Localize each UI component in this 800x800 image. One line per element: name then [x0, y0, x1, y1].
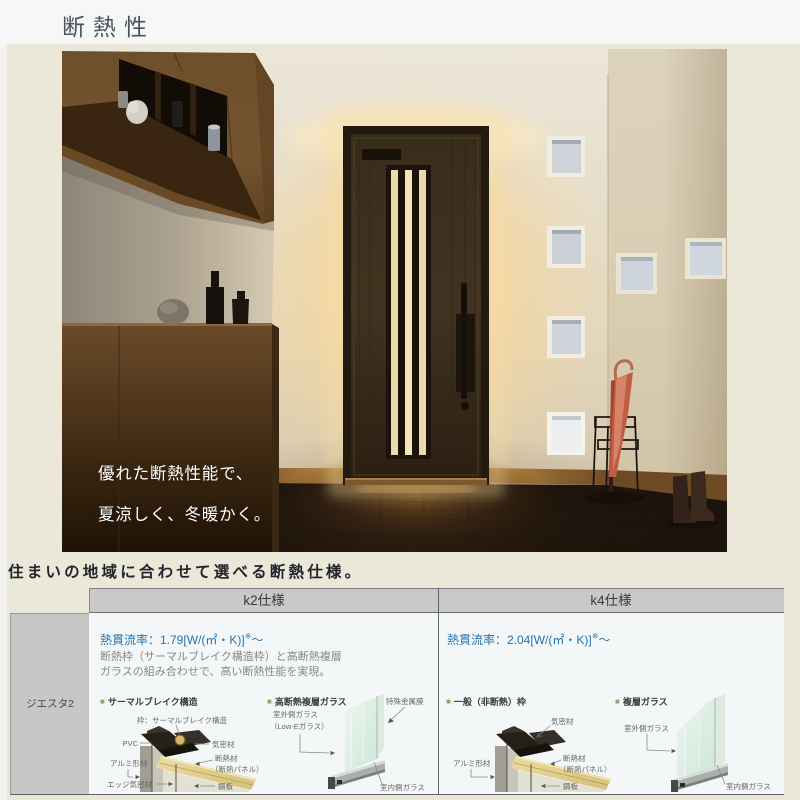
svg-text:室外側ガラス: 室外側ガラス [624, 723, 669, 733]
svg-text:（Low-Eガラス）: （Low-Eガラス） [270, 721, 329, 731]
svg-text:室内側ガラス: 室内側ガラス [726, 781, 771, 791]
svg-text:特殊金属膜: 特殊金属膜 [386, 696, 424, 706]
svg-text:（断熱パネル）: （断熱パネル） [559, 764, 612, 774]
svg-text:アルミ形材: アルミ形材 [453, 758, 491, 768]
svg-text:鋼板: 鋼板 [218, 781, 233, 791]
svg-text:アルミ形材: アルミ形材 [110, 758, 148, 768]
svg-text:（断熱パネル）: （断熱パネル） [211, 764, 264, 774]
svg-text:鋼板: 鋼板 [563, 781, 578, 791]
svg-text:PVC: PVC [123, 739, 139, 748]
svg-text:エッジ気密材: エッジ気密材 [107, 779, 152, 789]
svg-text:室内側ガラス: 室内側ガラス [380, 782, 425, 792]
svg-text:枠：サーマルブレイク構造: 枠：サーマルブレイク構造 [137, 715, 227, 725]
svg-text:気密材: 気密材 [212, 739, 235, 749]
svg-text:断熱材: 断熱材 [563, 753, 586, 763]
svg-text:室外側ガラス: 室外側ガラス [273, 709, 318, 719]
svg-text:断熱材: 断熱材 [215, 753, 238, 763]
svg-text:気密材: 気密材 [551, 716, 574, 726]
